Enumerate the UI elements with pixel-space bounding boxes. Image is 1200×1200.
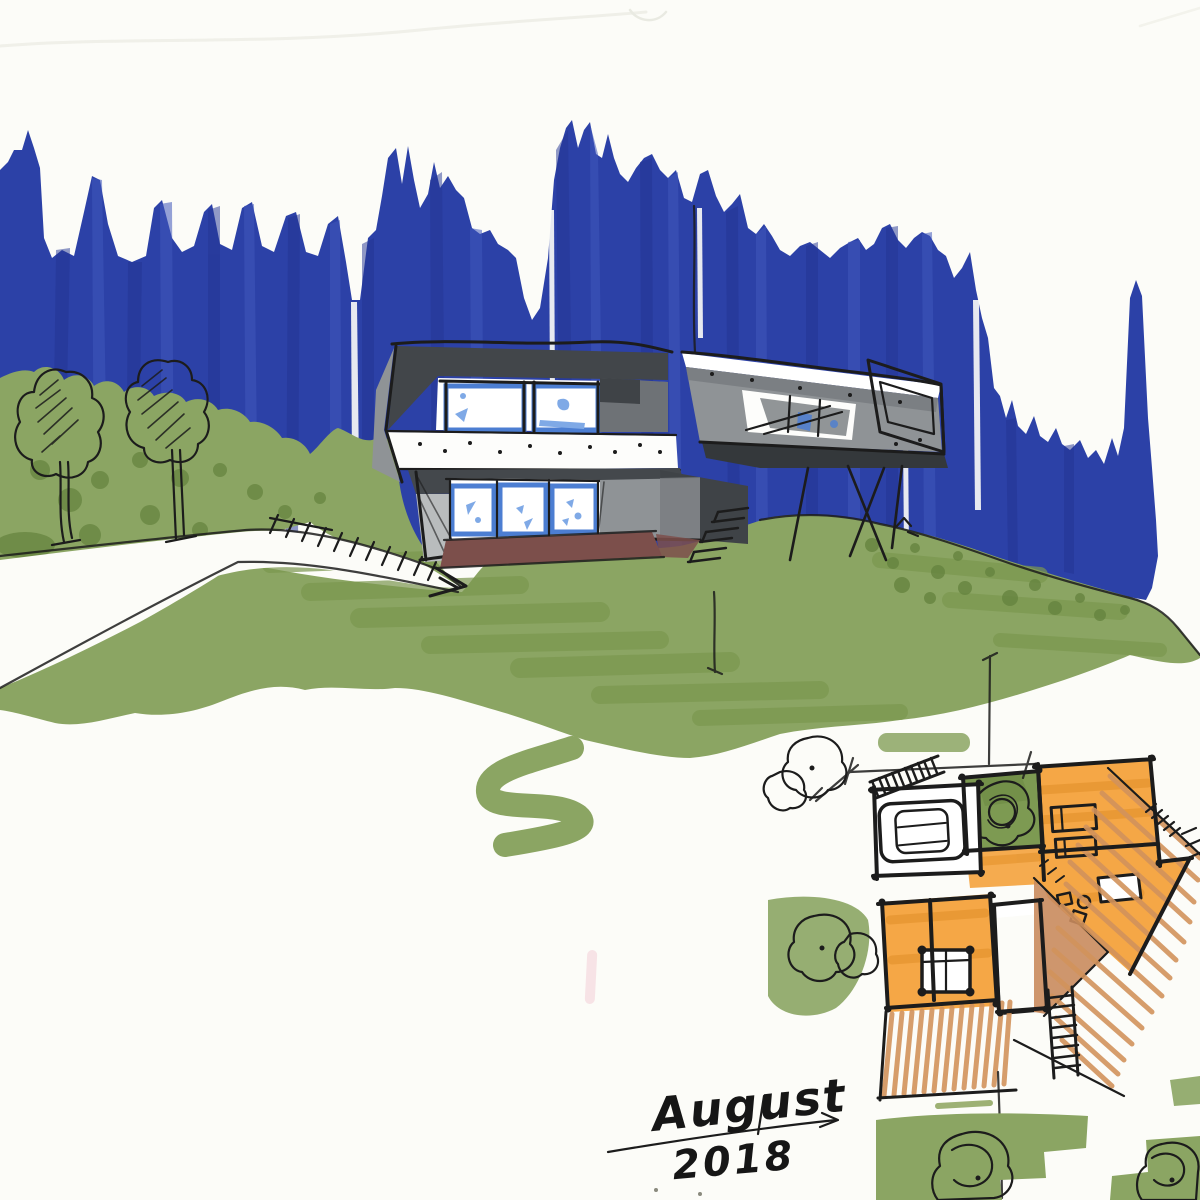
door-glass [452, 486, 494, 534]
window-glass [446, 386, 524, 430]
green-patch-corner [1170, 1076, 1200, 1106]
dimension-line-upper [694, 206, 695, 352]
tree-dot [820, 946, 825, 951]
sketch-page: August 2018 [0, 0, 1200, 1200]
bed-post [918, 946, 926, 954]
fascia-band [386, 432, 678, 470]
paper-speck [654, 1188, 658, 1192]
tree-dot [976, 1176, 981, 1181]
sketch-canvas: August 2018 [0, 0, 1200, 1200]
tree-dot [1170, 1178, 1175, 1183]
tree-dot [1006, 824, 1011, 829]
window-band-darker [600, 378, 640, 404]
plan-green-strip [878, 733, 970, 752]
bed-post [966, 946, 974, 954]
paper-speck [698, 1192, 702, 1196]
bed-post [918, 988, 926, 996]
lower-bedroom [918, 946, 974, 996]
door-glass [552, 486, 596, 532]
bed-post [966, 988, 974, 996]
glass-doors [446, 479, 600, 538]
lower-wall-gray-dark [660, 477, 700, 538]
green-stroke-light [938, 1103, 990, 1106]
upper-windows [440, 378, 668, 432]
tree-dot [810, 766, 815, 771]
bed-pillow-line [1064, 839, 1065, 857]
